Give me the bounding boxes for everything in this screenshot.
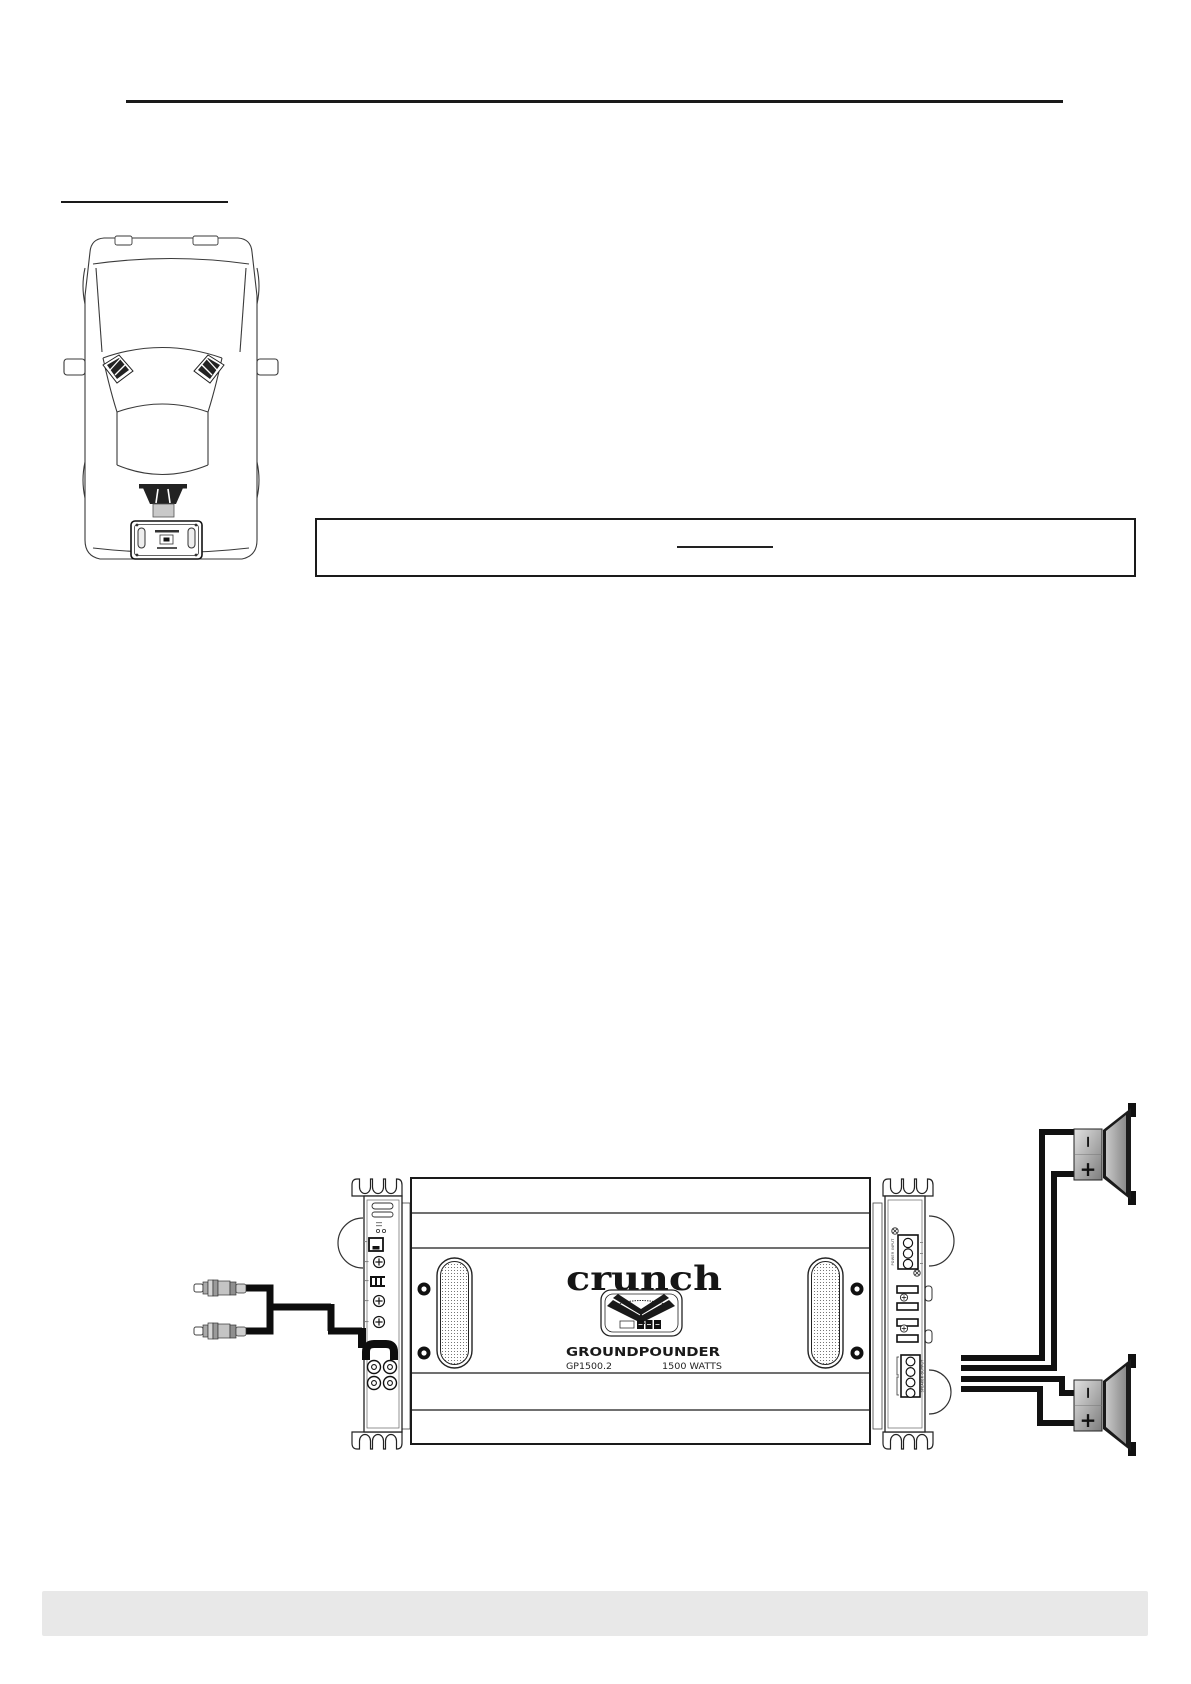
series-name: GROUNDPOUNDER	[566, 1344, 720, 1359]
screw-hole	[851, 1283, 864, 1296]
flange-slot	[925, 1286, 932, 1301]
micro-label-marks	[920, 1242, 923, 1243]
terminal-screw-icon	[914, 1270, 920, 1276]
micro-label-marks	[920, 1253, 923, 1254]
crossover-knob	[374, 1296, 385, 1307]
fuse-screw-icon	[900, 1325, 907, 1332]
side-mirror	[257, 359, 278, 375]
bass-knob	[374, 1317, 385, 1328]
wire-bottom-pos	[961, 1389, 1075, 1423]
screw-hole	[418, 1283, 431, 1296]
vent-slot	[372, 1203, 393, 1209]
hinge-column	[873, 1203, 882, 1429]
rca-input-jack	[368, 1361, 381, 1374]
wire-top-pos	[961, 1174, 1075, 1368]
speaker-top: − +	[1074, 1103, 1136, 1205]
micro-label-marks	[365, 1321, 369, 1322]
blank-heading-underline	[61, 201, 228, 203]
right-grille	[808, 1258, 843, 1368]
vent-slot	[372, 1212, 393, 1217]
remote-port	[369, 1238, 383, 1251]
speaker-wires	[961, 1132, 1075, 1423]
micro-label-marks	[376, 1222, 382, 1223]
heatsink-fins	[352, 1179, 402, 1196]
micro-label-marks	[155, 530, 179, 533]
power-input-block	[898, 1235, 918, 1269]
power-input-label: POWER INPUT	[891, 1238, 895, 1266]
heatsink-fins	[883, 1179, 933, 1196]
speaker-neg-terminal: −	[1079, 1135, 1098, 1148]
note-box	[315, 518, 1136, 577]
speaker-pos-terminal: +	[1080, 1157, 1097, 1181]
micro-label-marks	[365, 1280, 369, 1281]
left-grille	[437, 1258, 472, 1368]
screw-hole	[851, 1347, 864, 1360]
speaker-bottom: − +	[1074, 1354, 1136, 1456]
amplifier-wiring-diagram: crunch GROUNDPOUNDER GP1500.2	[0, 1080, 1191, 1480]
power-rating: 1500 WATTS	[662, 1362, 722, 1372]
micro-label-marks	[365, 1261, 369, 1262]
rca-input-jack	[384, 1377, 397, 1390]
trunk-amplifier	[131, 521, 202, 559]
note-underline	[677, 546, 773, 548]
speaker-neg-terminal: −	[1079, 1386, 1098, 1399]
micro-label-marks	[376, 1225, 382, 1226]
car-top-view-diagram	[55, 210, 290, 570]
amplifier-body: crunch GROUNDPOUNDER GP1500.2	[411, 1178, 870, 1444]
micro-label-marks	[157, 547, 177, 549]
footer-bar	[42, 1591, 1148, 1636]
rca-plug-bottom	[194, 1323, 246, 1339]
heatsink-fins	[352, 1432, 402, 1449]
right-bracket-arc	[929, 1370, 951, 1414]
rca-input-jack	[384, 1361, 397, 1374]
terminal-screw-icon	[892, 1228, 898, 1234]
fuse-slot	[897, 1335, 918, 1342]
fuse-screw-icon	[900, 1294, 907, 1301]
fuse-slot	[897, 1303, 918, 1310]
right-terminal-panel: POWER INPUT SPEAKER OUTPUT	[883, 1179, 933, 1449]
front-grille-mark	[115, 236, 132, 245]
front-grille-mark	[193, 236, 218, 245]
wire-top-neg	[961, 1132, 1075, 1358]
model-number: GP1500.2	[566, 1362, 612, 1372]
micro-label-marks	[620, 1321, 634, 1328]
top-rule	[126, 100, 1063, 103]
manual-page: crunch GROUNDPOUNDER GP1500.2	[0, 0, 1191, 1684]
side-mirror	[64, 359, 85, 375]
left-bracket-arc	[338, 1218, 363, 1268]
speaker-pos-terminal: +	[1080, 1408, 1097, 1432]
right-bracket-arc	[929, 1216, 954, 1266]
heatsink-fins	[883, 1432, 933, 1449]
speaker-output-block	[897, 1355, 920, 1397]
screw-hole	[418, 1347, 431, 1360]
fuse-slot	[897, 1319, 918, 1326]
dip-switch	[370, 1276, 385, 1287]
flange-slot	[925, 1330, 932, 1343]
rca-plug-top	[194, 1280, 246, 1296]
micro-label-marks	[365, 1300, 369, 1301]
fuse-slot	[897, 1286, 918, 1293]
speaker-output-label: SPEAKER OUTPUT	[921, 1360, 925, 1393]
micro-label-marks	[364, 1241, 368, 1242]
badge-emblem	[601, 1290, 682, 1336]
rca-input-jack	[368, 1377, 381, 1390]
gain-knob	[374, 1257, 385, 1268]
micro-label-marks	[920, 1263, 923, 1264]
hinge-column	[402, 1203, 410, 1429]
